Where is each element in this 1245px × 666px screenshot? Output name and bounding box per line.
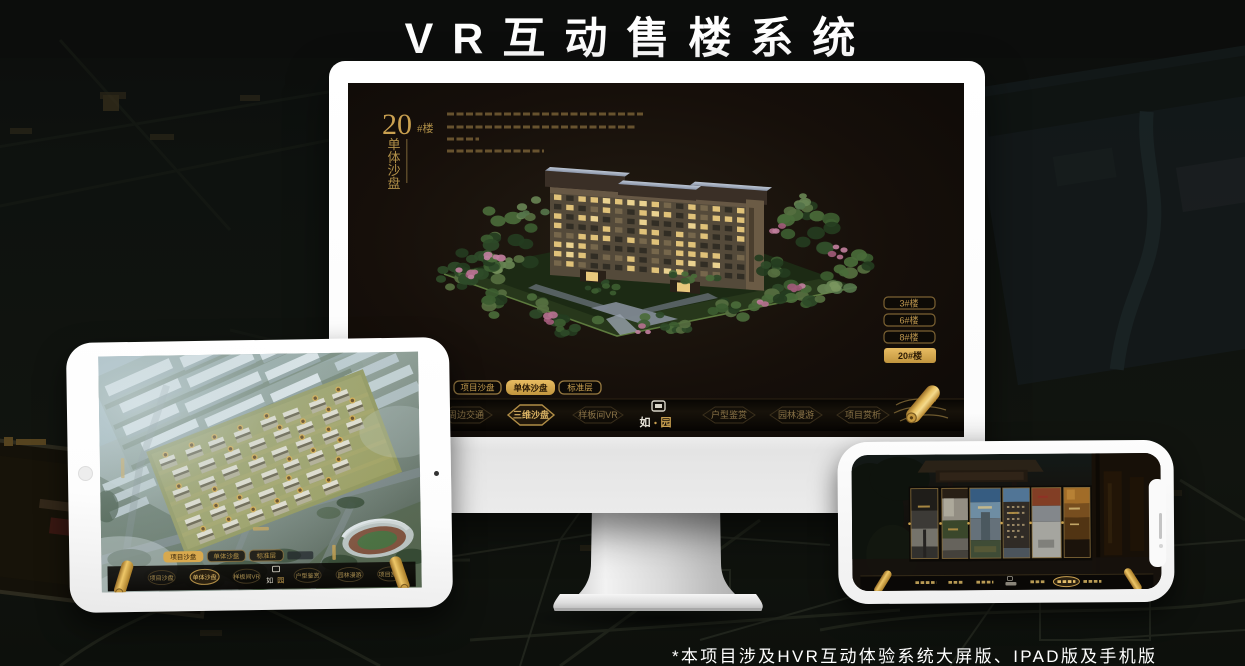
- svg-text:项目沙盘: 项目沙盘: [460, 383, 495, 393]
- svg-text:园林漫游: 园林漫游: [778, 409, 814, 420]
- svg-text:20#楼: 20#楼: [898, 350, 922, 361]
- svg-text:6#楼: 6#楼: [899, 315, 918, 326]
- svg-text:单体沙盘: 单体沙盘: [213, 551, 240, 560]
- svg-text:项目赏析: 项目赏析: [845, 409, 881, 420]
- svg-text:盘: 盘: [387, 176, 400, 191]
- svg-text:单体沙盘: 单体沙盘: [513, 383, 548, 393]
- svg-text:标准层: 标准层: [256, 551, 276, 560]
- svg-text:园: 园: [661, 416, 672, 429]
- svg-text:户型鉴赏: 户型鉴赏: [711, 409, 747, 420]
- svg-text:如: 如: [640, 415, 651, 429]
- svg-text:样板间VR: 样板间VR: [578, 409, 618, 420]
- svg-text:#楼: #楼: [417, 121, 434, 135]
- svg-text:标准层: 标准层: [567, 383, 593, 393]
- svg-text:8#楼: 8#楼: [899, 332, 918, 343]
- svg-text:园: 园: [277, 577, 284, 585]
- svg-text:周边交通: 周边交通: [448, 409, 484, 420]
- svg-text:3#楼: 3#楼: [899, 298, 918, 309]
- svg-text:如: 如: [266, 576, 273, 585]
- svg-text:项目沙盘: 项目沙盘: [170, 552, 197, 561]
- svg-text:三维沙盘: 三维沙盘: [513, 409, 549, 420]
